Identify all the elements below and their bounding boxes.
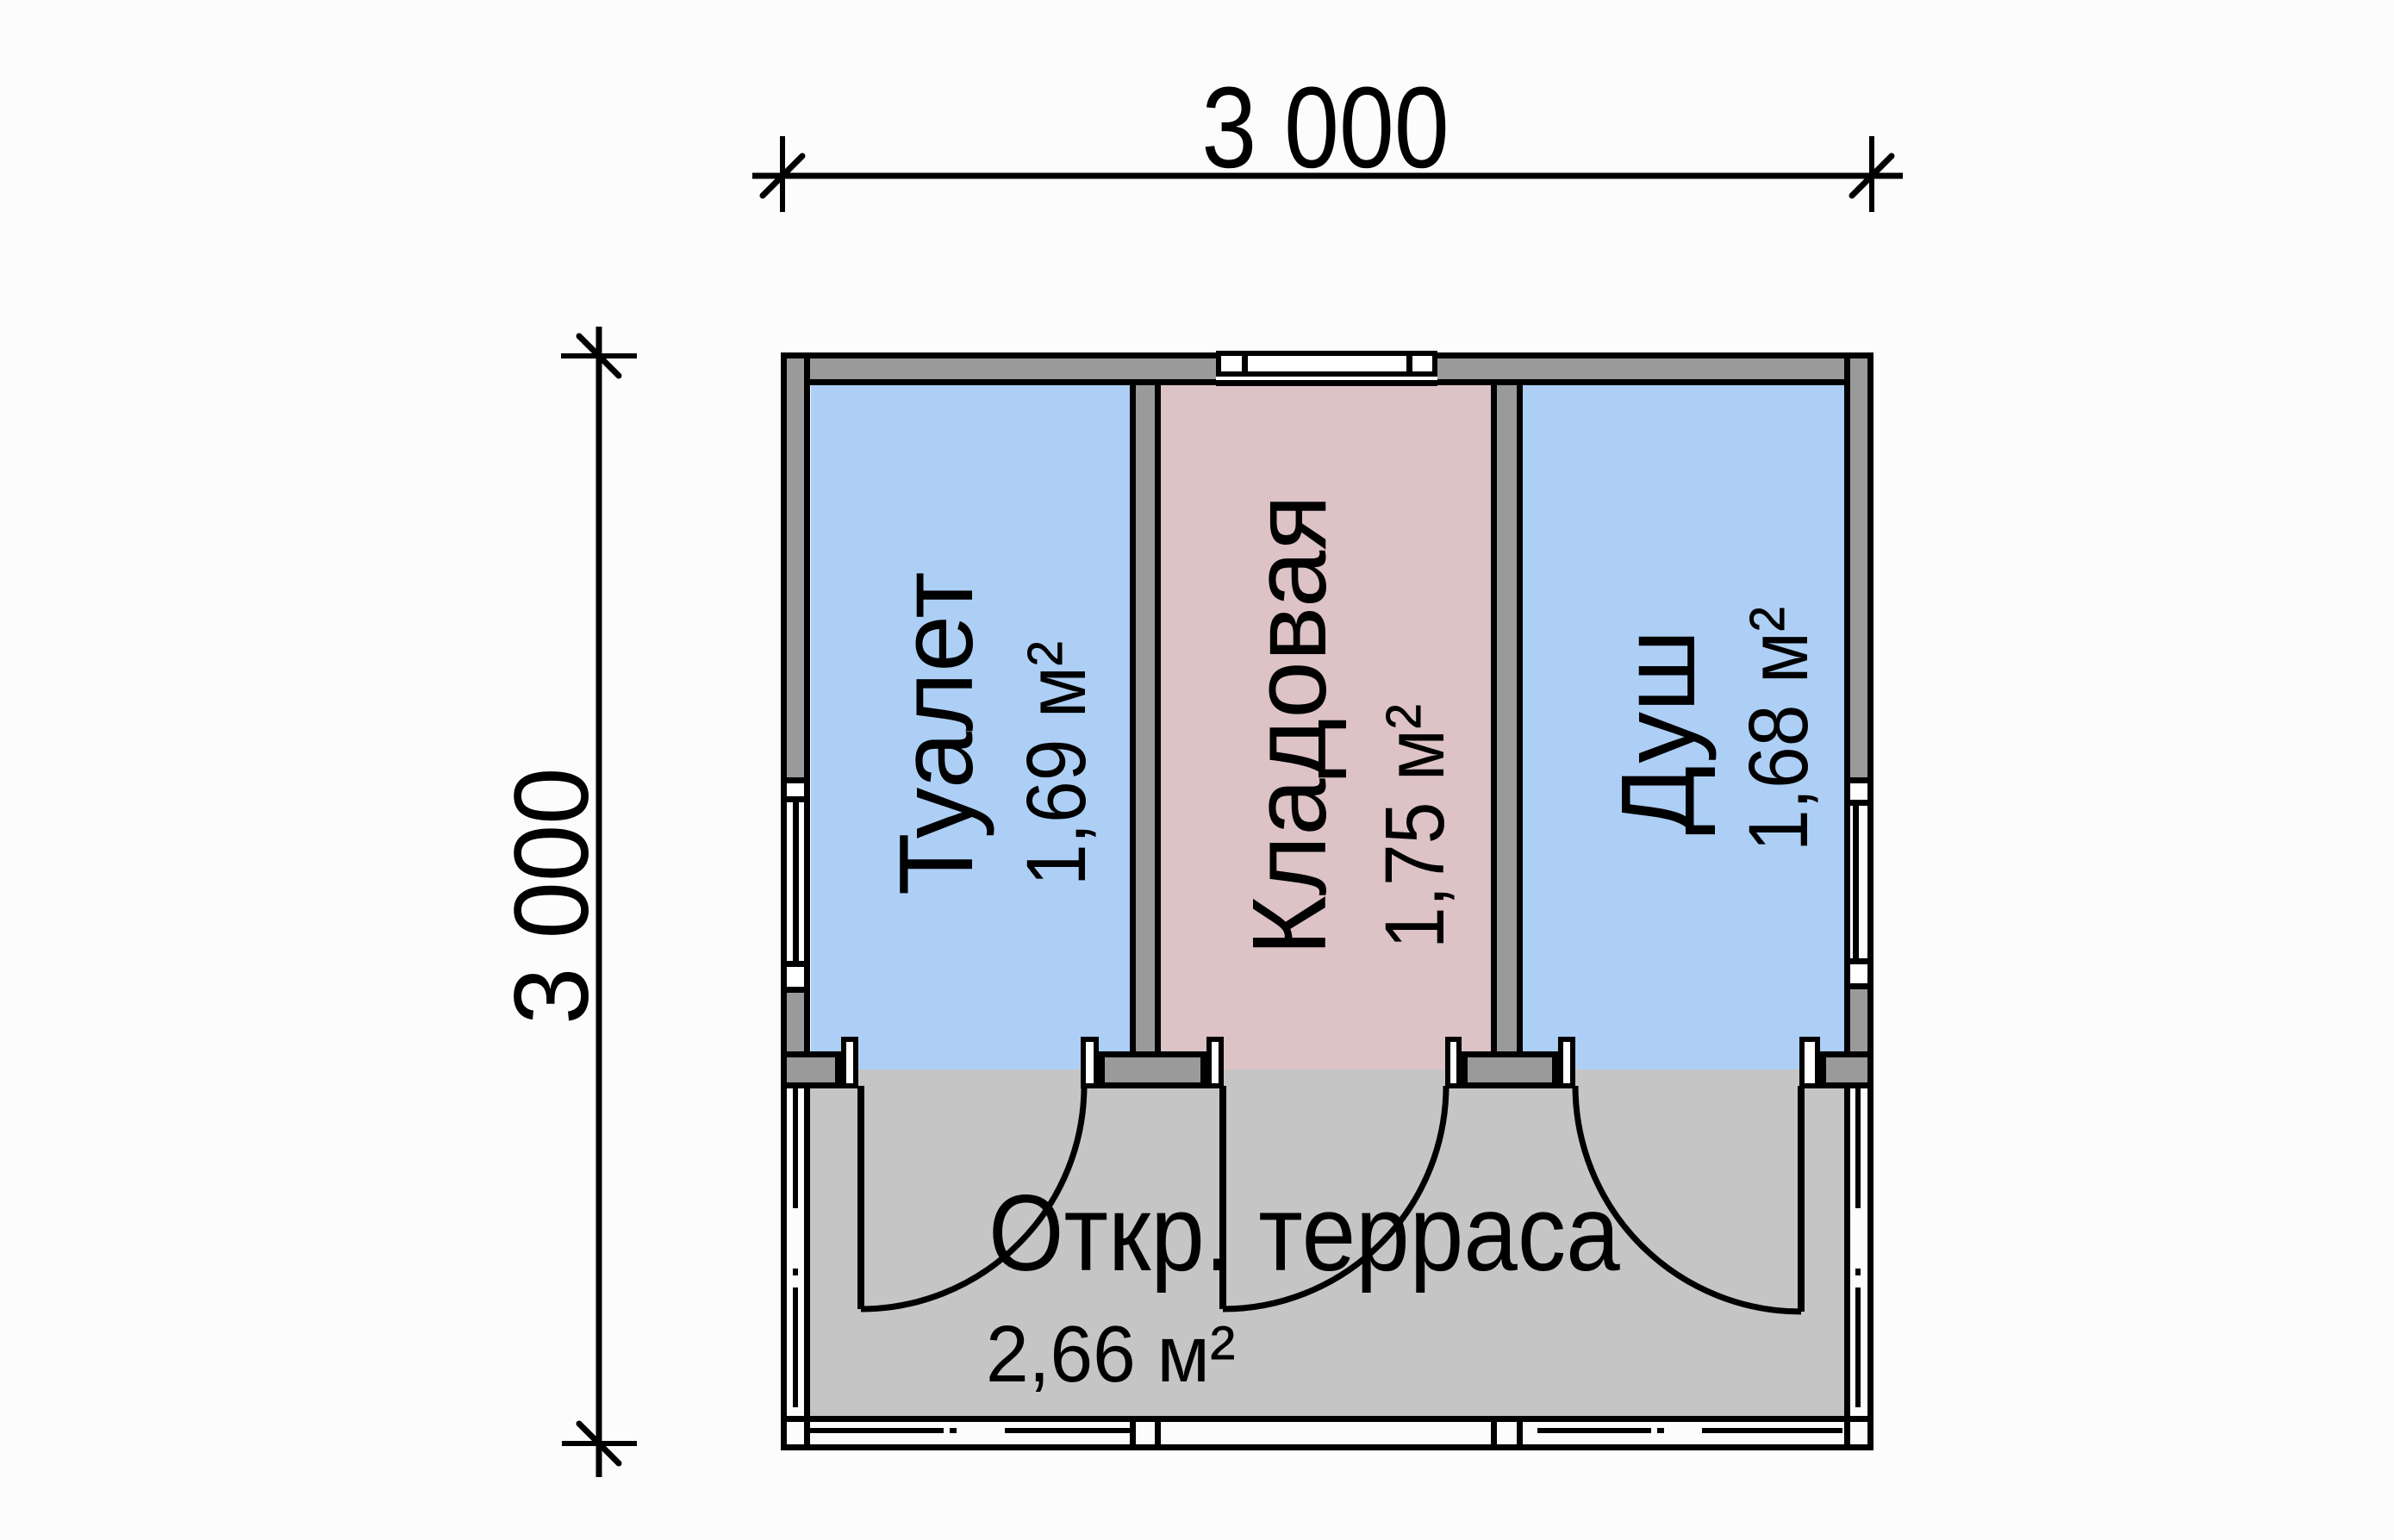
svg-text:2,66 м²: 2,66 м² [986, 1309, 1236, 1399]
svg-text:1,68 м²: 1,68 м² [1731, 607, 1825, 851]
svg-text:Туалет: Туалет [877, 571, 995, 895]
svg-text:3 000: 3 000 [1201, 64, 1449, 192]
svg-text:1,75 м²: 1,75 м² [1368, 704, 1462, 949]
svg-text:Душ: Душ [1599, 629, 1718, 835]
svg-text:Откр. терраса: Откр. терраса [988, 1174, 1620, 1294]
svg-text:Кладовая: Кладовая [1231, 495, 1348, 956]
svg-text:1,69 м²: 1,69 м² [1009, 641, 1103, 886]
svg-text:3 000: 3 000 [491, 767, 610, 1025]
